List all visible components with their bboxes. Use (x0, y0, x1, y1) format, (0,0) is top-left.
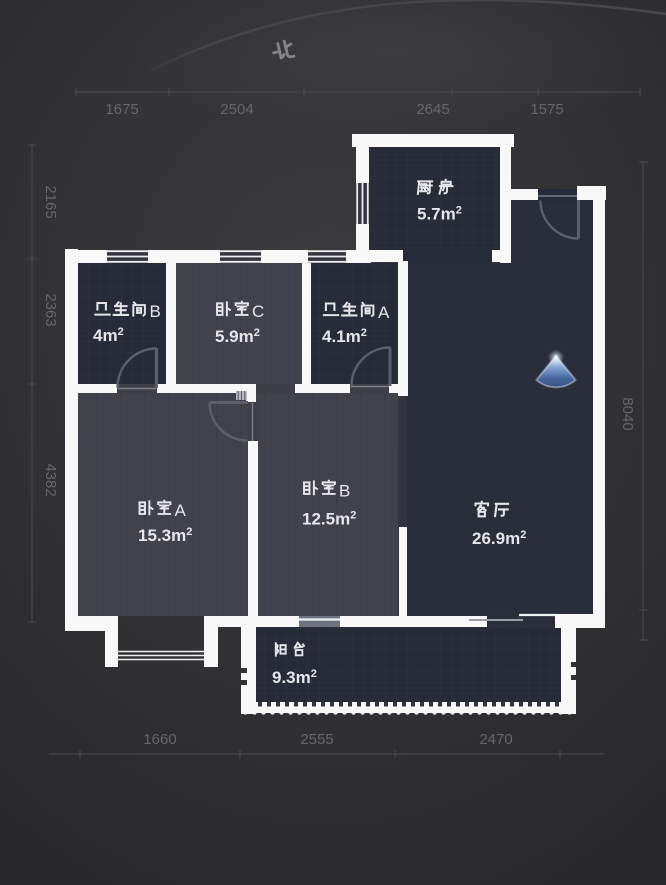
svg-text:2165: 2165 (42, 185, 59, 218)
svg-text:8040: 8040 (619, 397, 636, 430)
svg-text:B: B (150, 302, 161, 321)
svg-text:9.3m2: 9.3m2 (272, 668, 317, 687)
svg-text:A: A (378, 303, 390, 322)
svg-text:2470: 2470 (479, 731, 512, 748)
svg-text:4382: 4382 (42, 463, 59, 496)
svg-text:2363: 2363 (42, 293, 59, 326)
svg-text:A: A (175, 501, 187, 520)
svg-text:1660: 1660 (143, 731, 176, 748)
svg-text:C: C (252, 302, 264, 321)
svg-text:2504: 2504 (220, 101, 253, 118)
svg-text:1675: 1675 (105, 101, 138, 118)
svg-text:15.3m2: 15.3m2 (138, 526, 192, 545)
svg-text:1575: 1575 (530, 101, 563, 118)
svg-text:2555: 2555 (300, 731, 333, 748)
svg-text:12.5m2: 12.5m2 (302, 510, 356, 529)
svg-text:5.7m2: 5.7m2 (417, 205, 462, 224)
svg-text:5.9m2: 5.9m2 (215, 327, 260, 346)
svg-text:2645: 2645 (416, 101, 449, 118)
svg-text:B: B (339, 482, 350, 501)
svg-text:26.9m2: 26.9m2 (472, 529, 526, 548)
svg-text:4.1m2: 4.1m2 (322, 327, 367, 346)
